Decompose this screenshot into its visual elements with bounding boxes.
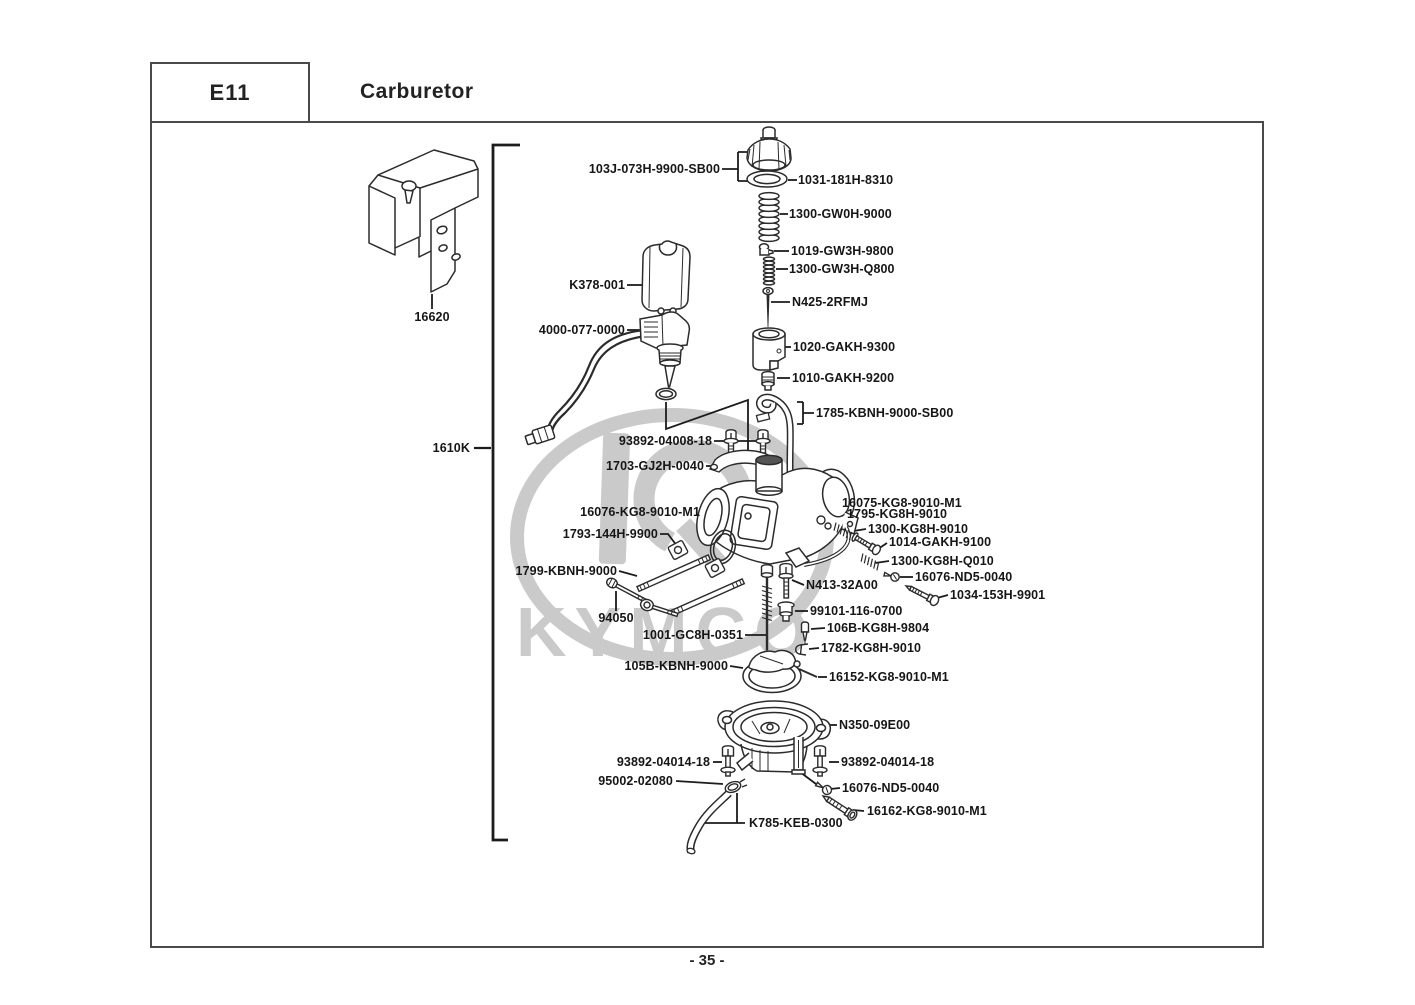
bowl-screw-drawing (813, 746, 827, 776)
slow-jet-drawing (762, 565, 773, 656)
assembly-group-bracket (474, 145, 520, 840)
manifold-bolt-drawing (724, 430, 738, 453)
small-screw-drawing (883, 570, 900, 582)
float-pin-clip-drawing (796, 644, 808, 655)
cap-seal-ring-drawing (747, 171, 787, 187)
drain-screw-drawing (820, 791, 859, 821)
valve-seat-fitting-drawing (762, 372, 774, 390)
bystarter-oring-drawing (656, 388, 676, 399)
bowl-screw-drawing (721, 746, 735, 776)
mounting-studs-drawing (605, 540, 744, 620)
drain-tube-drawing (737, 753, 753, 770)
idle-screw-drawing (904, 581, 941, 607)
bystarter-unit-drawing (524, 312, 689, 447)
carburetor-body-drawing (691, 455, 859, 567)
float-bowl-drawing (718, 701, 830, 774)
auto-bystarter-drawing (642, 241, 690, 314)
page-title: Carburetor (360, 62, 474, 121)
float-valve-drawing (802, 622, 809, 644)
air-screw-drawing (851, 532, 882, 556)
hose-clip-drawing (724, 779, 747, 794)
wire-connector-drawing (524, 425, 555, 447)
top-cap-assembly-drawing (747, 127, 791, 390)
tube-clip-drawing (756, 413, 769, 422)
jet-screws-drawing (762, 564, 809, 656)
small-screw-drawing (814, 780, 833, 796)
stud-drawing (637, 555, 710, 591)
diagram-canvas (0, 0, 1415, 1000)
page-number: - 35 - (150, 952, 1264, 969)
mounting-bracket-drawing (369, 150, 478, 292)
manifold-bolt-drawing (756, 430, 770, 453)
throttle-valve-drawing (753, 328, 785, 370)
drain-screws-drawing (814, 780, 858, 822)
main-jet-drawing (778, 602, 794, 621)
float-drawing (743, 650, 817, 692)
throttle-stop-screw-drawing (779, 564, 793, 598)
jet-needle-drawing (763, 288, 773, 327)
stud-drawing (671, 579, 744, 615)
needle-spring-drawing (764, 257, 775, 285)
drain-hose-drawing (686, 779, 747, 855)
throttle-spring-drawing (759, 193, 779, 242)
section-code-box: E11 (150, 62, 310, 123)
jet-needle-set-screw-drawing (760, 244, 774, 255)
section-code: E11 (210, 80, 251, 106)
